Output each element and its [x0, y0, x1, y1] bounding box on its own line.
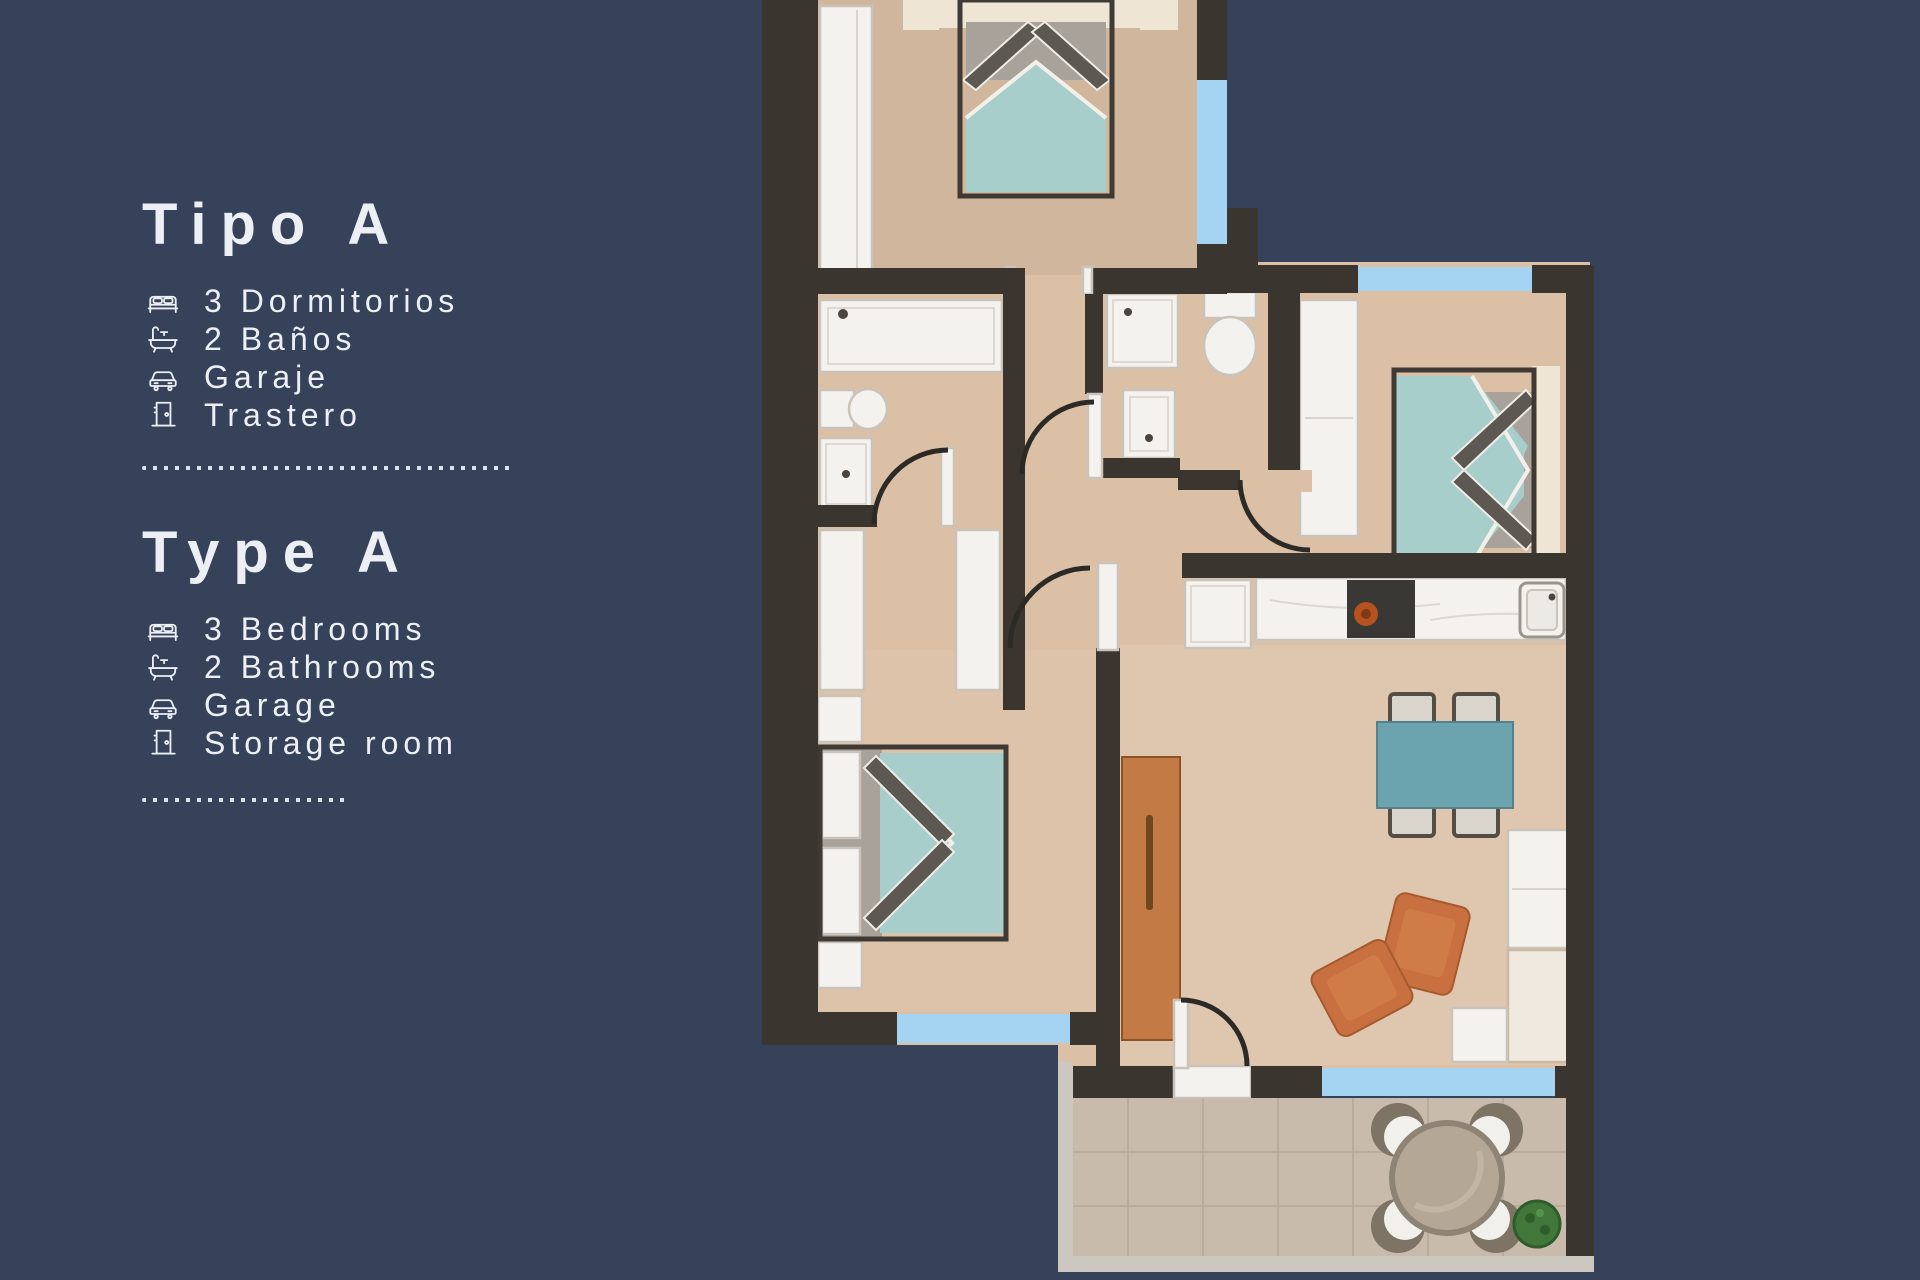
- toilet-tank: [1204, 292, 1256, 318]
- nightstand: [818, 942, 862, 988]
- nightstand: [818, 696, 862, 742]
- cabinet-handle: [1146, 815, 1153, 910]
- toilet-bowl: [1204, 317, 1256, 375]
- window: [1358, 267, 1532, 291]
- dining-table: [1377, 722, 1513, 808]
- vanity-counter: [820, 300, 1002, 372]
- closet: [956, 530, 1000, 690]
- side-table: [1452, 1008, 1507, 1062]
- door-leaf: [1088, 394, 1102, 478]
- floor-plan-graphic: [0, 0, 1920, 1280]
- wardrobe: [820, 6, 872, 274]
- door-leaf: [1098, 563, 1118, 650]
- pillow: [822, 848, 860, 934]
- kitchen: [1185, 578, 1566, 648]
- fridge: [1185, 580, 1251, 648]
- door-leaf: [941, 448, 954, 526]
- closet: [820, 530, 864, 690]
- window: [897, 1014, 1070, 1043]
- terrace-door-opening: [1174, 1066, 1251, 1098]
- plant: [1514, 1201, 1560, 1247]
- door-leaf: [1174, 1000, 1188, 1068]
- window: [1322, 1068, 1555, 1096]
- pillow: [822, 752, 860, 838]
- window: [1197, 80, 1227, 244]
- door-opening: [1240, 470, 1312, 492]
- toilet-bowl: [849, 389, 887, 429]
- faucet: [838, 309, 848, 319]
- shower-tray: [1107, 294, 1178, 368]
- nightstand: [1140, 0, 1178, 30]
- shelf-unit: [1508, 950, 1572, 1062]
- page: Tipo A 3 Dormitorios 2 Baños: [0, 0, 1920, 1280]
